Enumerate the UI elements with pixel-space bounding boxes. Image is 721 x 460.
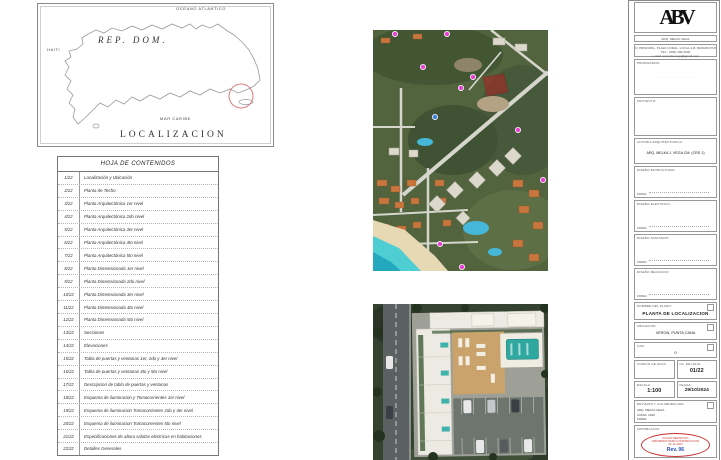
sheet-description-cell: Planta Arquitectónica 1er nivel bbox=[80, 198, 218, 210]
sheet-number-cell: 20/22 bbox=[58, 417, 80, 429]
sheet-description-cell: Planta Dimensionada 2do nivel bbox=[80, 275, 218, 287]
sheet-number-cell: 16/22 bbox=[58, 366, 80, 378]
drawing-name: PLANTA DE LOCALIZACION bbox=[635, 311, 716, 316]
sheet-number-cell: 6/22 bbox=[58, 237, 80, 249]
sheet-description-cell: Esquema de iluminacion Tomacorrientes 5t… bbox=[80, 417, 218, 429]
location-map-panel: OCEANO ATLANTICO HAITI REP. DOM. MAR CAR… bbox=[37, 3, 274, 147]
drawing-sheet: OCEANO ATLANTICO HAITI REP. DOM. MAR CAR… bbox=[0, 0, 721, 460]
sheet-number-cell: 1/22 bbox=[58, 172, 80, 184]
owner-placeholder: · · · · · · · · · · · · · · · · · · · · … bbox=[635, 75, 716, 79]
sheet-description-cell: Planta Arquitectónica 2do nivel bbox=[80, 211, 218, 223]
sheet-number-cell: 15/22 bbox=[58, 353, 80, 365]
owner-box: PROPIETARIO: · · · · · · · · · · · · · ·… bbox=[634, 59, 717, 95]
table-row: 16/22 Tabla de puertas y ventanas 4to y … bbox=[58, 366, 218, 379]
sheet-description-cell: Planta Dimensionada 3er nivel bbox=[80, 288, 218, 300]
sheet-number-cell: 14/22 bbox=[58, 340, 80, 352]
sheet-description-cell: Planta Dimensionada 5to nivel bbox=[80, 314, 218, 326]
sheet-description-cell: Elevaciones bbox=[80, 340, 218, 352]
sheet-number-cell: 2/22 bbox=[58, 185, 80, 197]
sheet-edge-line bbox=[719, 0, 720, 460]
satellite-photo bbox=[373, 30, 548, 271]
author-name: ARQ. MELKA J. VEGA CM. (CRD 1) bbox=[635, 151, 716, 155]
signature-line: FIRMA: bbox=[637, 294, 709, 298]
location-value: VERON, PUNTA CANA bbox=[635, 331, 716, 335]
approval-stamp-box: APROBACION: PLANO DEFINITIVOAPROBADO PAR… bbox=[634, 425, 717, 458]
signature-line: FIRMA: bbox=[637, 226, 709, 230]
table-row: 8/22 Planta Dimensionada 1er nivel bbox=[58, 262, 218, 275]
sheet-number-cell: 13/22 bbox=[58, 327, 80, 339]
sheet-description-cell: Planta Dimensionada 1er nivel bbox=[80, 262, 218, 274]
owner-label: PROPIETARIO: bbox=[637, 61, 661, 65]
index-box bbox=[707, 324, 714, 331]
sheet-description-cell: Planta Arquitectónica 5to nivel bbox=[80, 249, 218, 261]
firm-contact-box: C/ PRINCIPAL, PLAZA CORAL, LOCAL 2-B, BA… bbox=[634, 44, 717, 57]
sheet-description-cell: Detalles Generales bbox=[80, 443, 218, 455]
signature-line: FIRMA: bbox=[637, 260, 709, 264]
cad-value: 0 bbox=[635, 350, 716, 355]
sheet-top-line bbox=[628, 0, 720, 1]
firm-name-box: ARQ. MELKA VEGA bbox=[634, 35, 717, 42]
sheet-number-cell: 17/22 bbox=[58, 379, 80, 391]
location-box: UBICACION: VERON, PUNTA CANA bbox=[634, 322, 717, 340]
sheet-index-table: HOJA DE CONTENIDOS 1/22 Localización y U… bbox=[57, 156, 219, 456]
designer-box: DISEÑO ELECTRICO: FIRMA: bbox=[634, 200, 717, 232]
sheet-description-cell: Especificaciones de altura salidas elect… bbox=[80, 430, 218, 442]
sheet-number-cell: 9/22 bbox=[58, 275, 80, 287]
table-row: 21/22 Especificaciones de altura salidas… bbox=[58, 430, 218, 443]
aerial-render-photo bbox=[373, 304, 548, 460]
project-box: PROYECTO: bbox=[634, 97, 717, 136]
project-parcel-highlight bbox=[483, 74, 508, 96]
scale-label: ESCALA: bbox=[637, 383, 651, 387]
haiti-label: HAITI bbox=[47, 47, 60, 52]
sheet-number-cell: 12/22 bbox=[58, 314, 80, 326]
designer-label: DISEÑO MECANICO: bbox=[637, 270, 670, 274]
sheet-code-cell: CODIGO DE HOJA: bbox=[634, 360, 675, 379]
revision-label: REVISION Y COLABORACION: bbox=[637, 402, 685, 406]
sheet-description-cell: Planta Dimensionada 4to nivel bbox=[80, 301, 218, 313]
table-row: 11/22 Planta Dimensionada 4to nivel bbox=[58, 301, 218, 314]
index-box bbox=[707, 304, 714, 311]
table-row: 13/22 Secciones bbox=[58, 327, 218, 340]
designer-box: DISEÑO ESTRUCTURAL: FIRMA: bbox=[634, 166, 717, 198]
cad-box: CAD: 0 bbox=[634, 342, 717, 358]
sheet-number-cell: 10/22 bbox=[58, 288, 80, 300]
designer-label: DISEÑO ELECTRICO: bbox=[637, 202, 671, 206]
designer-box: DISEÑO SANITARIO: FIRMA: bbox=[634, 234, 717, 266]
signature-line: FIRMA: bbox=[637, 192, 709, 196]
scale-date-row: ESCALA: 1:100 FECHA: 29/10/2024 bbox=[634, 381, 717, 398]
sheet-number-cell: 3/22 bbox=[58, 198, 80, 210]
approval-label: APROBACION: bbox=[637, 427, 660, 431]
sheet-description-cell: Localización y Ubicación bbox=[80, 172, 218, 184]
author-box: AUTORIA ARQUITECTONICA: ARQ. MELKA J. VE… bbox=[634, 138, 717, 164]
sheet-number-cell: 21/22 bbox=[58, 430, 80, 442]
location-label: UBICACION: bbox=[637, 324, 657, 328]
stamp-lines: PLANO DEFINITIVOAPROBADO PARA CONSTRUCCI… bbox=[652, 437, 700, 447]
table-row: 10/22 Planta Dimensionada 3er nivel bbox=[58, 288, 218, 301]
sheet-number-cell: 22/22 bbox=[58, 443, 80, 455]
table-row: 22/22 Detalles Generales bbox=[58, 443, 218, 455]
drawing-name-label: NOMBRE DEL PLANO: bbox=[637, 304, 672, 308]
table-row: 2/22 Planta de Techo bbox=[58, 185, 218, 198]
sheet-description-cell: Tabla de puertas y ventanas 4to y 5to ni… bbox=[80, 366, 218, 378]
table-row: 7/22 Planta Arquitectónica 5to nivel bbox=[58, 249, 218, 262]
designer-box: DISEÑO MECANICO: FIRMA: bbox=[634, 268, 717, 300]
table-row: 12/22 Planta Dimensionada 5to nivel bbox=[58, 314, 218, 327]
table-row: 19/22 Esquema de iluminacion Tomacorrien… bbox=[58, 404, 218, 417]
sheet-code-label: CODIGO DE HOJA: bbox=[637, 362, 667, 366]
table-row: 15/22 Tabla de puertas y ventanas 1er, 2… bbox=[58, 353, 218, 366]
project-label: PROYECTO: bbox=[637, 99, 656, 103]
sheet-number-cell: 4/22 bbox=[58, 211, 80, 223]
drawing-name-box: NOMBRE DEL PLANO: PLANTA DE LOCALIZACION bbox=[634, 302, 717, 320]
toc-rows: 1/22 Localización y Ubicación 2/22 Plant… bbox=[58, 172, 218, 455]
country-label: REP. DOM. bbox=[98, 35, 168, 45]
sheet-no-value: 01/22 bbox=[678, 368, 717, 374]
table-row: 6/22 Planta Arquitectónica 4to nivel bbox=[58, 237, 218, 250]
map-title: LOCALIZACION bbox=[120, 130, 227, 140]
scale-cell: ESCALA: 1:100 bbox=[634, 381, 675, 398]
sheet-description-cell: Descripcion de tabla de puertas y ventan… bbox=[80, 379, 218, 391]
contact-line: e-mail: arqmelkavega@gmail.com bbox=[635, 54, 716, 58]
author-label: AUTORIA ARQUITECTONICA: bbox=[637, 140, 683, 144]
revision-number: Rev. 06 bbox=[667, 447, 684, 453]
toc-title: HOJA DE CONTENIDOS bbox=[58, 157, 218, 172]
table-row: 20/22 Esquema de iluminacion Tomacorrien… bbox=[58, 417, 218, 430]
scale-value: 1:100 bbox=[635, 388, 674, 394]
sheet-number-cell: 5/22 bbox=[58, 224, 80, 236]
revision-line: FIRMA: bbox=[637, 417, 664, 422]
date-cell: FECHA: 29/10/2024 bbox=[677, 381, 718, 398]
revision-box: REVISION Y COLABORACION: ARQ. MELKA VEGA… bbox=[634, 400, 717, 423]
sheet-margin-line bbox=[628, 0, 629, 460]
sheet-description-cell: Tabla de puertas y ventanas 1er, 2do y 3… bbox=[80, 353, 218, 365]
sheet-description-cell: Planta de Techo bbox=[80, 185, 218, 197]
table-row: 5/22 Planta Arquitectónica 3er nivel bbox=[58, 224, 218, 237]
sheet-description-cell: Secciones bbox=[80, 327, 218, 339]
revision-line: ARQ. MELKA VEGA bbox=[637, 408, 664, 413]
ocean-label: OCEANO ATLANTICO bbox=[176, 6, 226, 11]
table-row: 3/22 Planta Arquitectónica 1er nivel bbox=[58, 198, 218, 211]
firm-name: ARQ. MELKA VEGA bbox=[661, 37, 689, 41]
sheet-no-cell: No. DE HOJA: 01/22 bbox=[677, 360, 718, 379]
table-row: 9/22 Planta Dimensionada 2do nivel bbox=[58, 275, 218, 288]
table-row: 17/22 Descripcion de tabla de puertas y … bbox=[58, 379, 218, 392]
index-box bbox=[707, 402, 714, 409]
designer-label: DISEÑO SANITARIO: bbox=[637, 236, 670, 240]
table-row: 4/22 Planta Arquitectónica 2do nivel bbox=[58, 211, 218, 224]
revision-lines: ARQ. MELKA VEGACODIA: 2630FIRMA: bbox=[637, 408, 664, 422]
table-row: 14/22 Elevaciones bbox=[58, 340, 218, 353]
sheet-number-cell: 19/22 bbox=[58, 404, 80, 416]
table-row: 18/22 Esquema de iluminacion y Tomacorri… bbox=[58, 391, 218, 404]
date-value: 29/10/2024 bbox=[678, 388, 717, 393]
sheet-number-cell: 8/22 bbox=[58, 262, 80, 274]
sheet-number-row: CODIGO DE HOJA: No. DE HOJA: 01/22 bbox=[634, 360, 717, 379]
sheet-description-cell: Esquema de iluminacion Tomacorrientes 2d… bbox=[80, 404, 218, 416]
cad-label: CAD: bbox=[637, 344, 645, 348]
sheet-description-cell: Planta Arquitectónica 3er nivel bbox=[80, 224, 218, 236]
sheet-description-cell: Esquema de iluminacion y Tomacorrientes … bbox=[80, 391, 218, 403]
approval-stamp: PLANO DEFINITIVOAPROBADO PARA CONSTRUCCI… bbox=[641, 433, 710, 457]
map-inner-frame bbox=[40, 6, 271, 144]
date-label: FECHA: bbox=[680, 383, 692, 387]
designer-label: DISEÑO ESTRUCTURAL: bbox=[637, 168, 676, 172]
sheet-number-cell: 7/22 bbox=[58, 249, 80, 261]
sheet-number-cell: 11/22 bbox=[58, 301, 80, 313]
sheet-description-cell: Planta Arquitectónica 4to nivel bbox=[80, 237, 218, 249]
firm-logo: ABV bbox=[634, 2, 717, 33]
designers-stack: DISEÑO ESTRUCTURAL: FIRMA: DISEÑO ELECTR… bbox=[634, 166, 717, 300]
table-row: 1/22 Localización y Ubicación bbox=[58, 172, 218, 185]
sheet-no-label: No. DE HOJA: bbox=[680, 362, 702, 366]
sheet-number-cell: 18/22 bbox=[58, 391, 80, 403]
sea-label: MAR CARIBE bbox=[160, 116, 191, 121]
